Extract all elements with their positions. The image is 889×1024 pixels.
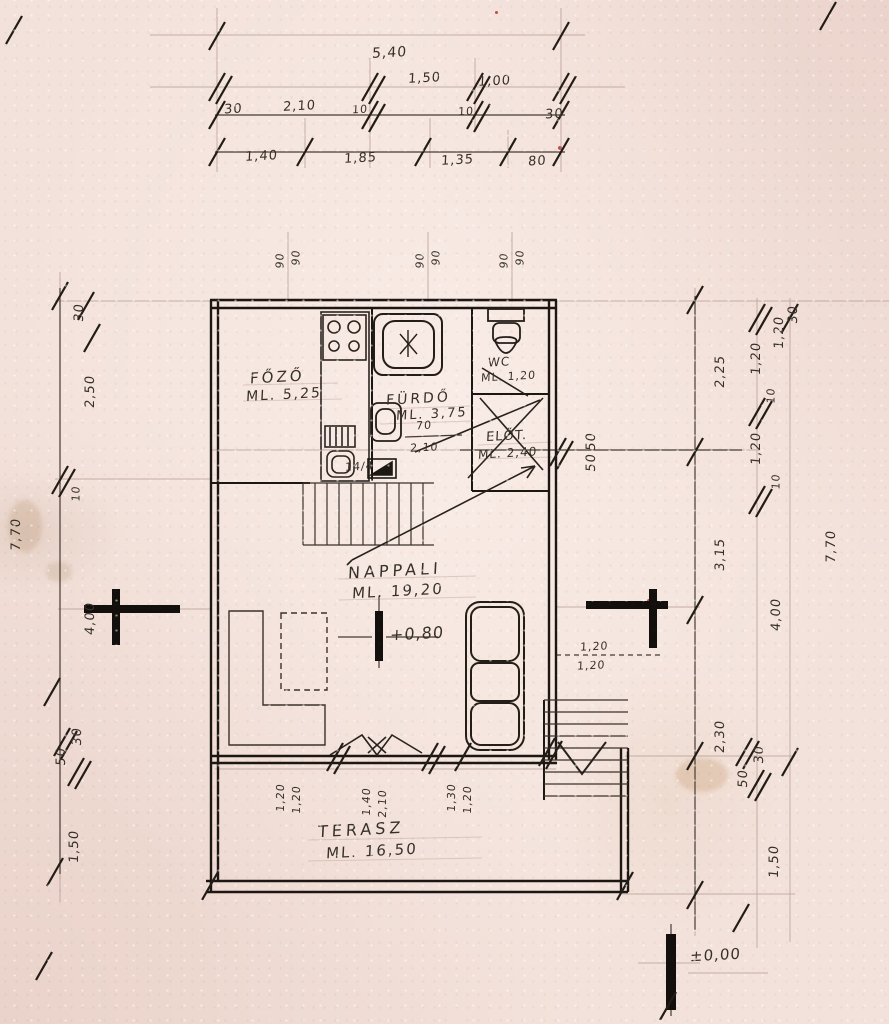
level-label-plus080: +0,80 bbox=[390, 625, 445, 644]
dim-label: 1,20 bbox=[773, 315, 786, 349]
room-name-elo: ELŐT. bbox=[486, 429, 528, 444]
dim-label: 10 bbox=[71, 485, 82, 502]
dim-label: 1,85 bbox=[344, 151, 378, 166]
dim-label: 2,10 bbox=[377, 789, 388, 819]
window-dim: 90 bbox=[291, 249, 302, 266]
dim-label: 1,20 bbox=[577, 659, 606, 672]
dim-label: 5,40 bbox=[372, 45, 408, 61]
interior-stairs bbox=[303, 483, 434, 545]
dim-label: 1,35 bbox=[441, 153, 475, 168]
dim-label: 1,20 bbox=[275, 783, 286, 813]
dim-label: 50 bbox=[585, 453, 598, 473]
dim-label: 1,00 bbox=[478, 74, 512, 89]
room-name-terasz: TERASZ bbox=[318, 820, 405, 841]
level-mark-plus080 bbox=[375, 611, 383, 661]
toilet-icon bbox=[484, 308, 528, 353]
dim-label: 30 bbox=[753, 745, 766, 765]
stove-icon bbox=[323, 315, 366, 360]
dim-label: 2,30 bbox=[714, 719, 727, 753]
dim-label: 80 bbox=[528, 154, 547, 168]
room-name-furdo: FÜRDŐ bbox=[386, 390, 451, 407]
room-area-elo: ML. 2,40 bbox=[478, 445, 538, 460]
dimension-ticks bbox=[6, 2, 836, 1020]
dim-label: 2,10 bbox=[410, 441, 439, 454]
dim-label: 1,30 bbox=[446, 783, 457, 813]
dim-label: 30 bbox=[71, 727, 84, 747]
dim-label: 1,50 bbox=[68, 829, 81, 863]
dim-label: 7,70 bbox=[825, 529, 838, 563]
dim-label: 14/4 bbox=[345, 460, 374, 473]
room-name-wc: WC bbox=[488, 355, 511, 368]
floor-plan-sheet: 5,40 1,50 1,00 30 2,10 10 10 30 1,40 1,8… bbox=[0, 0, 889, 1024]
dim-label: 50 bbox=[55, 747, 68, 767]
section-mark-left bbox=[84, 589, 180, 645]
dim-label: 1,20 bbox=[291, 785, 302, 815]
kitchen-counter bbox=[321, 312, 369, 481]
dim-label: 1,50 bbox=[408, 71, 442, 86]
room-area-furdo: ML. 3,75 bbox=[396, 406, 468, 423]
sofa-icon bbox=[466, 602, 524, 750]
dim-label: 2,25 bbox=[714, 354, 727, 388]
room-name-fozo: FŐZŐ bbox=[250, 369, 305, 387]
dim-label: 10 bbox=[458, 106, 475, 118]
dim-label: 30 bbox=[224, 102, 243, 116]
dim-label: 1,40 bbox=[245, 149, 279, 164]
room-area-wc: ML. 1,20 bbox=[481, 370, 537, 384]
dim-label: 10 bbox=[771, 473, 782, 490]
dim-label: 7,70 bbox=[10, 517, 23, 551]
dim-label: 10 bbox=[766, 387, 777, 404]
dim-label: 2,50 bbox=[84, 374, 97, 408]
room-area-fozo: ML. 5,25 bbox=[246, 386, 323, 404]
window-dim: 90 bbox=[415, 252, 426, 269]
bathtub-icon bbox=[374, 314, 442, 375]
window-dim: 90 bbox=[499, 252, 510, 269]
window-zigzag-icon bbox=[330, 735, 422, 755]
window-dim: 90 bbox=[275, 252, 286, 269]
stair-down-arrow-icon bbox=[558, 742, 606, 774]
bench-icon bbox=[229, 611, 327, 745]
level-label-zero: ±0,00 bbox=[690, 947, 742, 965]
dim-label: 50 bbox=[737, 769, 750, 789]
dim-label: 30 bbox=[787, 305, 800, 325]
dim-label: 1,20 bbox=[462, 785, 473, 815]
dim-label: 1,40 bbox=[361, 787, 372, 817]
dim-label: 4,00 bbox=[84, 601, 97, 635]
dim-label: 1,50 bbox=[768, 844, 781, 878]
fridge-hatch-icon bbox=[325, 426, 355, 447]
window-dim: 90 bbox=[515, 249, 526, 266]
dim-label: 1,20 bbox=[580, 640, 609, 653]
dim-label: 4,00 bbox=[770, 597, 783, 631]
dim-label: 10 bbox=[352, 104, 369, 116]
dim-label: 1,20 bbox=[750, 431, 763, 465]
dim-label: 30 bbox=[73, 303, 86, 323]
dim-label: 50 bbox=[585, 432, 598, 452]
dim-label: 30 bbox=[545, 107, 564, 121]
dim-label: 2,10 bbox=[283, 99, 317, 114]
window-dim: 90 bbox=[431, 249, 442, 266]
dim-label: 3,15 bbox=[714, 537, 727, 571]
dim-label: 1,20 bbox=[750, 341, 763, 375]
